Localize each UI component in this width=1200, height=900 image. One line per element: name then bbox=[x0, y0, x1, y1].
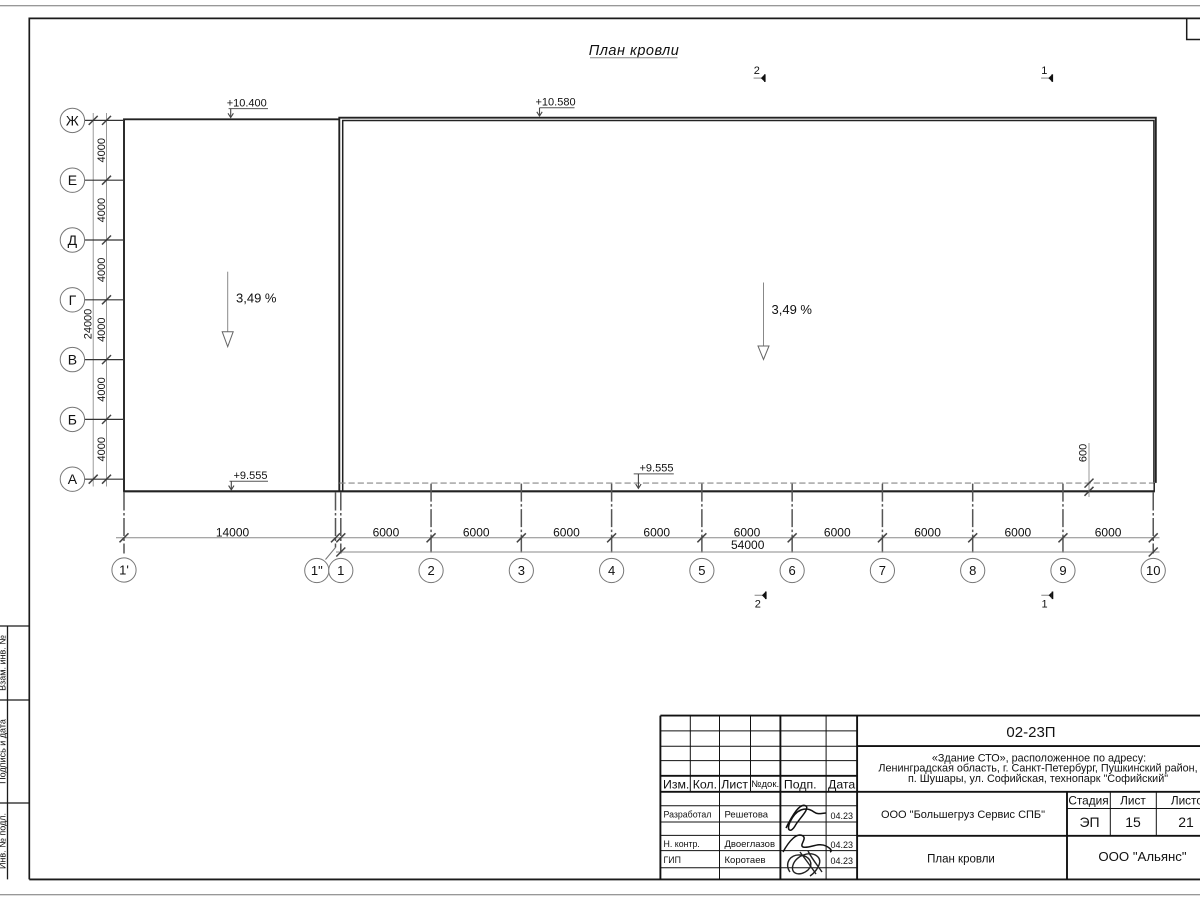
svg-text:ЭП: ЭП bbox=[1079, 814, 1099, 830]
svg-text:п. Шушары, ул. Софийская, техн: п. Шушары, ул. Софийская, технопарк "Соф… bbox=[908, 773, 1168, 785]
svg-text:15: 15 bbox=[1125, 814, 1141, 830]
svg-text:+9.555: +9.555 bbox=[640, 463, 674, 475]
svg-text:Д: Д bbox=[68, 232, 78, 248]
svg-text:4000: 4000 bbox=[96, 437, 108, 461]
svg-text:Н. контр.: Н. контр. bbox=[664, 839, 700, 849]
svg-text:Разработал: Разработал bbox=[664, 809, 712, 819]
svg-text:Инв. № подл.: Инв. № подл. bbox=[0, 813, 8, 869]
svg-text:2: 2 bbox=[427, 563, 434, 578]
svg-text:3: 3 bbox=[518, 563, 525, 578]
svg-text:2: 2 bbox=[755, 599, 761, 611]
svg-text:1": 1" bbox=[311, 563, 323, 578]
svg-text:Решетова: Решетова bbox=[725, 809, 769, 820]
svg-text:В: В bbox=[68, 352, 77, 368]
svg-text:6000: 6000 bbox=[1004, 526, 1031, 540]
svg-text:4000: 4000 bbox=[96, 258, 108, 282]
svg-text:04.23: 04.23 bbox=[831, 811, 854, 821]
svg-text:План кровли: План кровли bbox=[927, 854, 995, 866]
svg-text:6000: 6000 bbox=[1095, 526, 1122, 540]
svg-text:ООО "Альянс": ООО "Альянс" bbox=[1098, 849, 1186, 864]
svg-text:14000: 14000 bbox=[216, 526, 250, 540]
svg-text:Г: Г bbox=[69, 292, 77, 308]
svg-text:+9.555: +9.555 bbox=[234, 470, 268, 482]
svg-text:02-23П: 02-23П bbox=[1006, 724, 1055, 741]
svg-text:Подпись и дата: Подпись и дата bbox=[0, 719, 8, 784]
svg-text:Коротаев: Коротаев bbox=[725, 855, 766, 866]
svg-text:6000: 6000 bbox=[914, 526, 941, 540]
svg-text:1: 1 bbox=[1041, 65, 1047, 77]
svg-text:1': 1' bbox=[119, 563, 129, 578]
svg-text:Дата: Дата bbox=[828, 777, 855, 791]
svg-text:Взам. инв. №: Взам. инв. № bbox=[0, 635, 8, 691]
svg-text:Ж: Ж bbox=[66, 112, 79, 128]
svg-text:А: А bbox=[68, 471, 78, 487]
svg-text:1: 1 bbox=[1041, 599, 1047, 611]
svg-text:ООО "Большегруз Сервис СПБ": ООО "Большегруз Сервис СПБ" bbox=[881, 809, 1045, 821]
svg-text:Подп.: Подп. bbox=[784, 777, 817, 791]
svg-text:4000: 4000 bbox=[96, 138, 108, 162]
svg-text:6000: 6000 bbox=[824, 526, 851, 540]
svg-text:№док.: №док. bbox=[751, 779, 779, 790]
svg-text:7: 7 bbox=[879, 563, 886, 578]
svg-text:21: 21 bbox=[1178, 814, 1194, 830]
svg-text:4000: 4000 bbox=[96, 317, 108, 341]
svg-text:Стадия: Стадия bbox=[1068, 793, 1108, 807]
svg-text:1: 1 bbox=[337, 563, 344, 578]
svg-text:3,49 %: 3,49 % bbox=[772, 302, 813, 317]
svg-text:3,49 %: 3,49 % bbox=[236, 290, 277, 305]
svg-text:4: 4 bbox=[608, 563, 615, 578]
svg-text:4000: 4000 bbox=[96, 198, 108, 222]
svg-text:Е: Е bbox=[68, 172, 77, 188]
svg-text:План кровли: План кровли bbox=[589, 43, 680, 59]
svg-text:6000: 6000 bbox=[553, 526, 580, 540]
svg-text:8: 8 bbox=[969, 563, 976, 578]
svg-text:+10.580: +10.580 bbox=[536, 97, 576, 109]
svg-text:6000: 6000 bbox=[373, 526, 400, 540]
svg-text:5: 5 bbox=[698, 563, 705, 578]
svg-text:6: 6 bbox=[789, 563, 796, 578]
svg-text:54000: 54000 bbox=[731, 538, 765, 552]
svg-text:Б: Б bbox=[68, 411, 77, 427]
svg-text:6000: 6000 bbox=[643, 526, 670, 540]
svg-text:ГИП: ГИП bbox=[664, 855, 681, 865]
svg-text:600: 600 bbox=[1078, 444, 1090, 462]
svg-text:6000: 6000 bbox=[463, 526, 490, 540]
svg-text:24000: 24000 bbox=[83, 309, 95, 340]
svg-text:Изм.: Изм. bbox=[663, 777, 689, 791]
svg-text:10: 10 bbox=[1146, 563, 1160, 578]
svg-text:Двоеглазов: Двоеглазов bbox=[725, 839, 776, 850]
svg-text:Лист: Лист bbox=[721, 777, 748, 791]
svg-text:04.23: 04.23 bbox=[831, 840, 854, 850]
svg-text:Листов: Листов bbox=[1171, 793, 1200, 807]
svg-text:9: 9 bbox=[1059, 563, 1066, 578]
svg-text:04.23: 04.23 bbox=[831, 856, 854, 866]
svg-text:Лист: Лист bbox=[1120, 793, 1146, 807]
svg-text:+10.400: +10.400 bbox=[227, 98, 267, 110]
svg-text:4000: 4000 bbox=[96, 377, 108, 401]
svg-text:Кол.: Кол. bbox=[693, 777, 717, 791]
svg-text:2: 2 bbox=[754, 65, 760, 77]
